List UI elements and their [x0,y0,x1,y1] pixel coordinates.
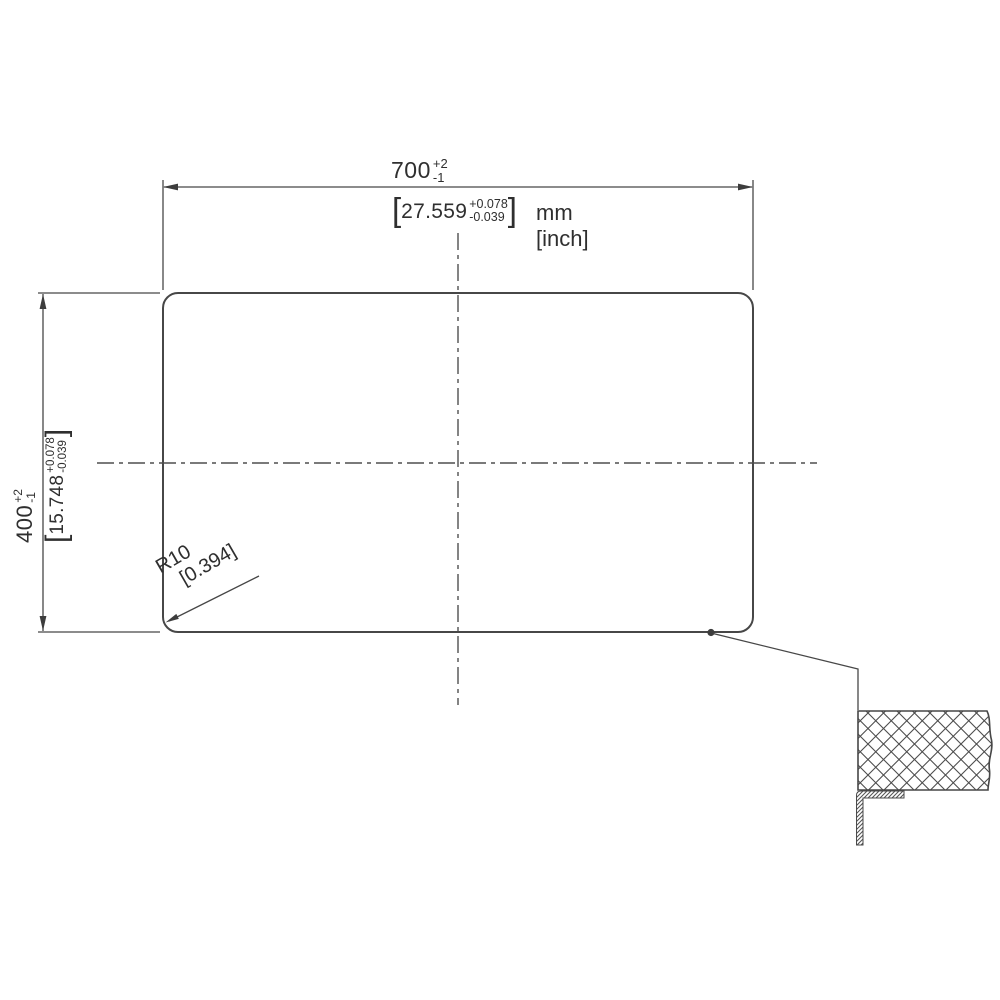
height-dimension-value: 400 +2 -1 [ 15.748 +0.078 -0.039 ] [12,383,75,543]
height-dim-secondary: [ 15.748 +0.078 -0.039 ] [39,383,75,543]
units-secondary: [inch] [536,226,589,252]
bracket-open: [ [43,535,70,543]
width-dimension-inch-value: [ 27.559 +0.078 -0.039 ] [392,192,517,230]
width-dim-tolerance-minus: -1 [433,171,448,185]
height-dim-tolerance: +2 -1 [12,489,37,503]
height-arrow-bottom-icon [40,616,47,631]
height-dim-inch-tolerance: +0.078 -0.039 [45,437,69,473]
width-dim-tolerance: +2 -1 [433,157,448,184]
height-arrow-top-icon [40,294,47,309]
width-dimension-value: 700 +2 -1 [391,157,448,184]
height-dim-inch-tolerance-plus: +0.078 [45,437,57,473]
width-dim-number: 700 [391,159,431,182]
technical-drawing-page: 700 +2 -1 [ 27.559 +0.078 -0.039 ] mm [i… [0,0,1000,1000]
width-dim-inch-number: 27.559 [401,201,467,222]
width-dim-inch-tolerance-minus: -0.039 [469,211,508,224]
height-dim-inch-tolerance-minus: -0.039 [57,437,69,473]
corner-leader-line [713,634,858,711]
height-dim-number: 400 [14,505,36,543]
units-label: mm [inch] [536,200,589,252]
height-dim-tolerance-minus: -1 [25,489,38,503]
bracket-close: ] [508,195,517,225]
units-primary: mm [536,200,589,226]
sink-rim-profile [857,791,905,845]
bracket-close: ] [43,429,70,437]
countertop-section-hatch [858,711,992,790]
width-arrow-left-icon [163,184,178,191]
height-dim-primary: 400 +2 -1 [12,383,37,543]
height-dim-inch-number: 15.748 [48,475,67,535]
bracket-open: [ [392,195,401,225]
height-dim-tolerance-plus: +2 [12,489,25,503]
width-arrow-right-icon [738,184,753,191]
corner-leader-dot [707,629,714,636]
radius-leader-arrow-icon [166,614,179,623]
technical-drawing-canvas [0,0,1000,1000]
width-dim-tolerance-plus: +2 [433,157,448,171]
width-dim-inch-tolerance: +0.078 -0.039 [469,198,508,224]
